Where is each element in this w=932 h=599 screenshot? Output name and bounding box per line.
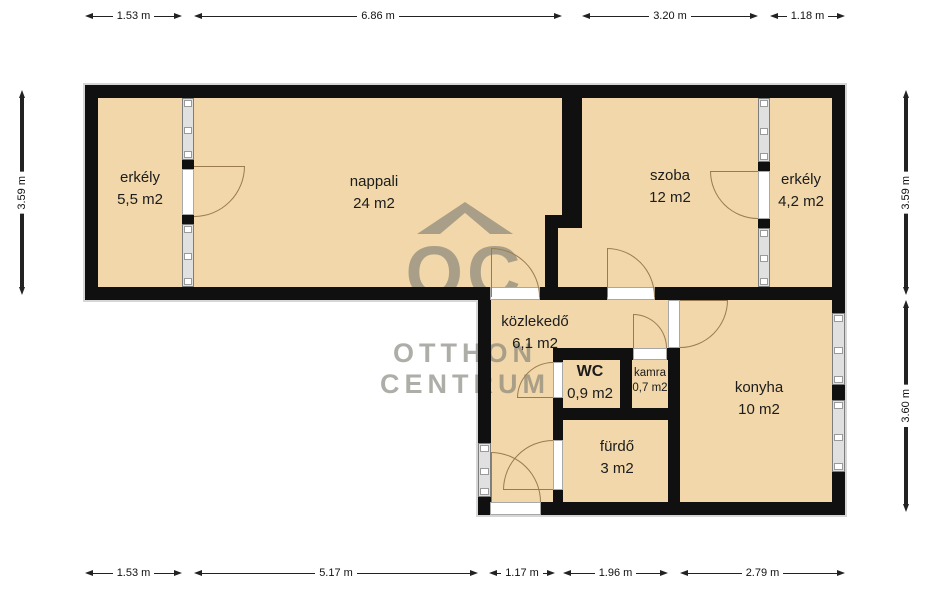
wall-konyha-left (668, 348, 680, 502)
room-label-erkely-right: erkély 4,2 m2 (778, 169, 824, 213)
room-name: közlekedő (501, 311, 569, 333)
dimension-bottom-1: 1.53 m (85, 567, 182, 579)
wall-nappali-szoba-upper (562, 98, 582, 228)
arrow-right-icon (750, 13, 758, 19)
arrow-up-icon (903, 90, 909, 98)
door-jamb (182, 215, 194, 224)
room-area: 12 m2 (649, 187, 691, 209)
window-balcony-right-upper (758, 98, 770, 162)
arrow-down-icon (19, 287, 25, 295)
room-name: kamra (632, 366, 667, 381)
room-name: szoba (649, 165, 691, 187)
window-balcony-left-lower (182, 224, 194, 287)
wall-upper-bottom (85, 287, 845, 300)
dimension-bottom-3: 1.17 m (489, 567, 555, 579)
arrow-down-icon (903, 287, 909, 295)
room-area: 0,7 m2 (632, 381, 667, 396)
room-label-konyha: konyha 10 m2 (735, 377, 783, 421)
door-opening-kamra (633, 348, 667, 360)
arrow-left-icon (582, 13, 590, 19)
wall-wc-kamra (620, 360, 632, 408)
dimension-bottom-2: 5.17 m (194, 567, 478, 579)
dimension-bottom-4: 1.96 m (563, 567, 668, 579)
window-konyha-lower (832, 400, 845, 472)
door-jamb (182, 160, 194, 169)
floor-plan: OC OTTHON CENTRUM erk (0, 0, 932, 599)
wall-left (85, 85, 98, 300)
room-area: 0,9 m2 (567, 383, 613, 405)
room-label-furdo: fürdő 3 m2 (600, 436, 634, 480)
arrow-left-icon (194, 570, 202, 576)
dimension-bottom-5: 2.79 m (680, 567, 845, 579)
arrow-right-icon (470, 570, 478, 576)
arrow-left-icon (85, 570, 93, 576)
room-area: 4,2 m2 (778, 191, 824, 213)
arrow-left-icon (194, 13, 202, 19)
room-label-wc: WC 0,9 m2 (567, 361, 613, 405)
room-label-nappali: nappali 24 m2 (350, 171, 398, 215)
room-label-kozlekedo: közlekedő 6,1 m2 (501, 311, 569, 355)
arrow-left-icon (680, 570, 688, 576)
window-balcony-right-lower (758, 228, 770, 287)
arrow-up-icon (903, 300, 909, 308)
arrow-left-icon (770, 13, 778, 19)
door-opening-wc (553, 362, 563, 398)
arrow-left-icon (85, 13, 93, 19)
door-opening-balcony-left (182, 169, 194, 215)
door-opening-konyha (668, 300, 680, 348)
dimension-right-1: 3.59 m (900, 90, 912, 295)
door-jamb (758, 219, 770, 228)
arrow-right-icon (660, 570, 668, 576)
dimension-top-2: 6.86 m (194, 10, 562, 22)
door-opening-entrance (490, 502, 541, 515)
wall-right-upper (832, 85, 845, 300)
door-opening-furdo (553, 440, 563, 490)
arrow-right-icon (837, 570, 845, 576)
wall-wc-furdo (553, 408, 680, 420)
arrow-left-icon (563, 570, 571, 576)
room-name: WC (567, 361, 613, 383)
arrow-up-icon (19, 90, 25, 98)
arrow-right-icon (554, 13, 562, 19)
room-label-szoba: szoba 12 m2 (649, 165, 691, 209)
arrow-right-icon (837, 13, 845, 19)
room-name: erkély (117, 167, 163, 189)
wall-top (85, 85, 845, 98)
room-name: konyha (735, 377, 783, 399)
room-area: 3 m2 (600, 458, 634, 480)
room-name: fürdő (600, 436, 634, 458)
arrow-left-icon (489, 570, 497, 576)
room-area: 24 m2 (350, 193, 398, 215)
window-balcony-left-upper (182, 98, 194, 160)
room-name: erkély (778, 169, 824, 191)
door-opening-balcony-right (758, 171, 770, 219)
dimension-top-4: 1.18 m (770, 10, 845, 22)
room-area: 10 m2 (735, 399, 783, 421)
room-name: nappali (350, 171, 398, 193)
room-area: 5,5 m2 (117, 189, 163, 211)
arrow-right-icon (174, 13, 182, 19)
door-jamb (758, 162, 770, 171)
arrow-right-icon (547, 570, 555, 576)
window-konyha-upper (832, 313, 845, 385)
arrow-down-icon (903, 504, 909, 512)
room-label-erkely-left: erkély 5,5 m2 (117, 167, 163, 211)
wall-nappali-szoba-lower (545, 215, 558, 300)
dimension-top-1: 1.53 m (85, 10, 182, 22)
dimension-right-2: 3.60 m (900, 300, 912, 512)
window-kozlekedo (478, 443, 491, 497)
arrow-right-icon (174, 570, 182, 576)
room-area: 6,1 m2 (501, 333, 569, 355)
dimension-left-1: 3.59 m (16, 90, 28, 295)
dimension-top-3: 3.20 m (582, 10, 758, 22)
room-label-kamra: kamra 0,7 m2 (632, 366, 667, 396)
